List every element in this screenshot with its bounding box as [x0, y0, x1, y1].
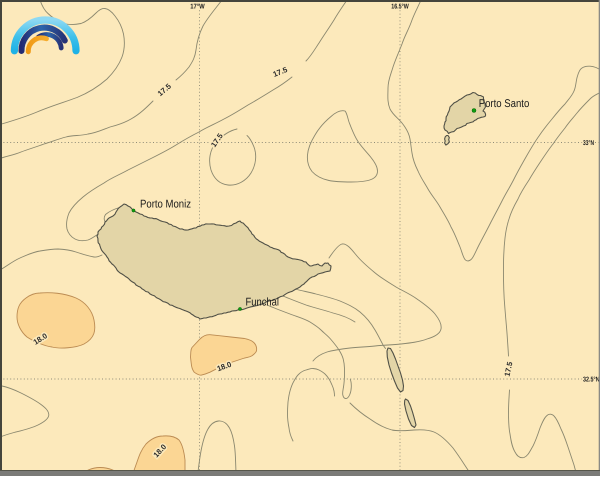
svg-text:32.5°N: 32.5°N — [583, 377, 600, 384]
svg-text:33°N: 33°N — [583, 140, 594, 147]
svg-text:Porto Moniz: Porto Moniz — [140, 199, 191, 211]
svg-text:16.5°W: 16.5°W — [391, 4, 409, 11]
svg-text:Porto Santo: Porto Santo — [479, 98, 530, 110]
svg-text:17°W: 17°W — [190, 4, 205, 11]
svg-text:Funchal: Funchal — [246, 297, 280, 309]
